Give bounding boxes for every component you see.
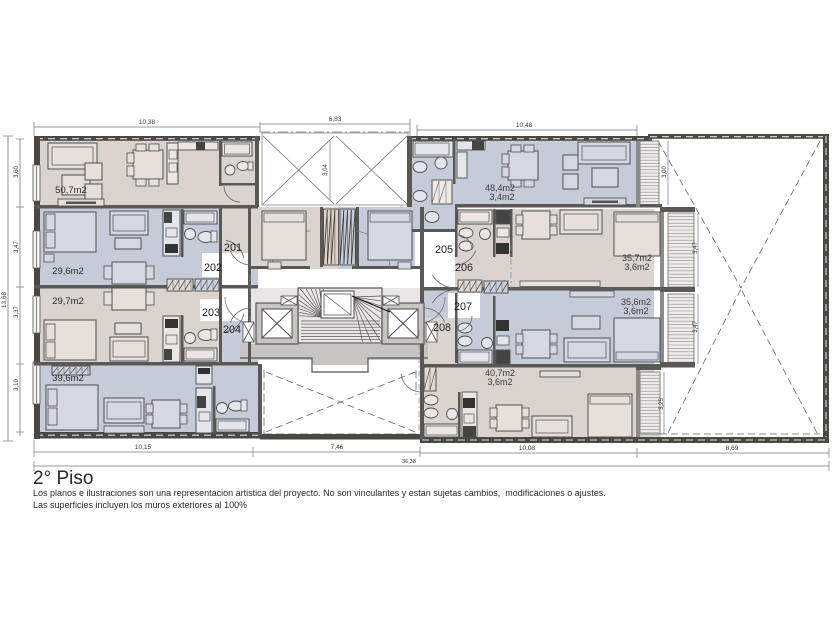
svg-text:206: 206 <box>455 262 473 274</box>
svg-text:204: 204 <box>223 324 241 336</box>
svg-text:3,6m2: 3,6m2 <box>623 306 648 316</box>
svg-text:3,10: 3,10 <box>14 379 20 391</box>
svg-text:3,60: 3,60 <box>14 166 20 178</box>
svg-text:203: 203 <box>202 307 220 319</box>
svg-text:Las superficies incluyen los m: Las superficies incluyen los muros exter… <box>33 500 247 510</box>
svg-text:6,83: 6,83 <box>329 116 342 123</box>
svg-text:10,38: 10,38 <box>139 119 156 126</box>
svg-text:Los planos e ilustraciones son: Los planos e ilustraciones son una repre… <box>33 488 606 498</box>
svg-text:205: 205 <box>435 244 453 256</box>
svg-text:3,6m2: 3,6m2 <box>487 377 512 387</box>
svg-text:7,46: 7,46 <box>331 444 344 451</box>
svg-text:50,7m2: 50,7m2 <box>55 185 87 196</box>
svg-text:10,08: 10,08 <box>519 445 536 452</box>
svg-text:3,4m2: 3,4m2 <box>489 192 514 202</box>
svg-text:207: 207 <box>454 301 472 313</box>
svg-text:3,00: 3,00 <box>662 166 668 178</box>
svg-text:10,48: 10,48 <box>516 122 533 129</box>
svg-text:3,47: 3,47 <box>693 321 699 333</box>
svg-text:39,6m2: 39,6m2 <box>52 373 84 384</box>
svg-text:13,68: 13,68 <box>1 291 8 308</box>
svg-text:3,25: 3,25 <box>659 398 665 410</box>
svg-text:3,37: 3,37 <box>14 306 20 318</box>
svg-text:2° Piso: 2° Piso <box>33 468 93 489</box>
svg-text:8,69: 8,69 <box>726 445 739 452</box>
svg-text:29,7m2: 29,7m2 <box>52 296 84 307</box>
svg-text:29,6m2: 29,6m2 <box>52 266 84 277</box>
svg-text:10,15: 10,15 <box>135 444 152 451</box>
svg-text:201: 201 <box>224 242 242 254</box>
svg-text:36,38: 36,38 <box>402 459 416 465</box>
svg-text:202: 202 <box>204 262 222 274</box>
svg-text:3,47: 3,47 <box>693 242 699 254</box>
svg-text:208: 208 <box>433 322 451 334</box>
svg-text:3,47: 3,47 <box>14 241 20 253</box>
svg-text:3,6m2: 3,6m2 <box>624 262 649 272</box>
svg-text:3,04: 3,04 <box>323 164 329 176</box>
